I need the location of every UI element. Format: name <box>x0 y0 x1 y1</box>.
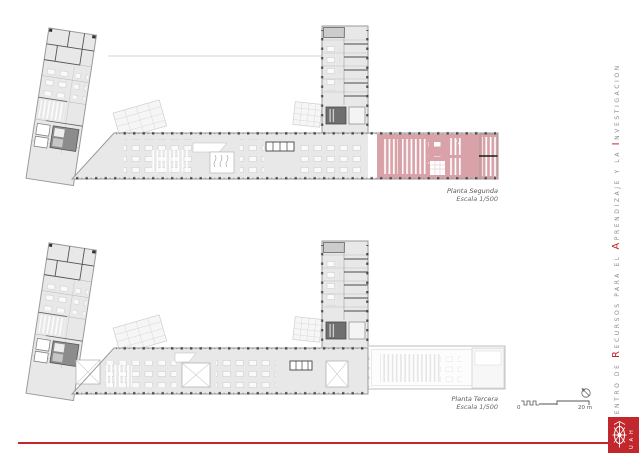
title-initial-r: R <box>611 348 622 358</box>
title-initial-i: I <box>611 140 622 146</box>
lower-floor-plan <box>26 241 505 401</box>
university-seal-icon <box>610 421 629 449</box>
lower-vertical-wing <box>321 241 369 349</box>
drawing-sheet: Planta Segunda Escala 1/500 Planta Terce… <box>0 0 640 453</box>
upper-side-terrace <box>293 102 322 128</box>
university-logo: U A H <box>608 417 639 453</box>
floor-plans-drawing <box>0 0 640 453</box>
scale-bar-zero-label: 0 <box>517 405 521 411</box>
upper-plan-scale: Escala 1/500 <box>398 195 498 203</box>
lower-plan-scale: Escala 1/500 <box>398 403 498 411</box>
footer-rule <box>18 442 608 444</box>
scale-bar-end-label: 20 m <box>578 405 592 411</box>
upper-auditorium <box>210 152 234 173</box>
lower-side-terrace <box>293 317 322 343</box>
upper-vertical-wing <box>321 26 369 134</box>
north-arrow-icon <box>582 388 591 397</box>
lower-roof-terrace <box>367 346 505 389</box>
lower-plan-name: Planta Tercera <box>398 395 498 403</box>
upper-plan-name: Planta Segunda <box>398 187 498 195</box>
upper-highlight-zone <box>377 134 498 179</box>
upper-floor-plan <box>26 26 498 186</box>
logo-letters: U A H <box>629 429 635 449</box>
sheet-title-vertical: CENTRO DE RECURSOS PARA EL APRENDIZAJE Y… <box>611 18 622 424</box>
upper-plan-label: Planta Segunda Escala 1/500 <box>398 187 498 203</box>
lower-plan-label: Planta Tercera Escala 1/500 <box>398 395 498 411</box>
upper-left-wing <box>26 28 96 186</box>
title-initial-a: A <box>611 240 622 249</box>
